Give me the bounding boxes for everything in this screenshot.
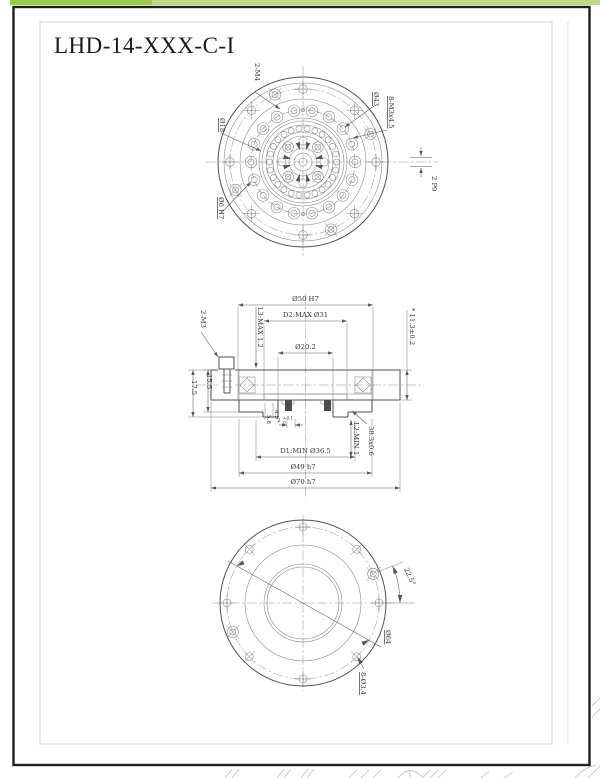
dim-label-d1min: D1:MIN Ø36.5 (280, 447, 331, 455)
dim-label-l2: L2:MIN 1 (352, 422, 360, 455)
dim-label-8-d34: 8-Ø3.4 (359, 672, 367, 695)
top-accent-bar-left (10, 0, 152, 5)
dim-label-l3: L3:MAX 1.2 (256, 307, 264, 348)
dim-label-ring: 38.3x0.6 (367, 426, 375, 456)
m3-bolt (218, 356, 235, 394)
dim-label-d50: Ø50 H7 (292, 295, 319, 303)
dim-label-keyway: 2 P9 (430, 176, 438, 191)
sheet-border (14, 7, 590, 765)
dim-label-d2max: D2:MAX Ø31 (283, 311, 328, 319)
dim-label-d6h7: Ø6 H7 (217, 197, 225, 219)
dimension-l2: L2:MIN 1 (351, 420, 360, 457)
top-accent-bar-right (152, 0, 600, 5)
drawing-sheet: LHD-14-XXX-C-I 2 P9 2-M4 (0, 0, 600, 778)
dim-label-d202: Ø20.2 (295, 343, 316, 351)
dim-label-58: 5.8 (265, 415, 271, 424)
drawing-page: LHD-14-XXX-C-I 2 P9 2-M4 (0, 0, 600, 778)
dim-label-d49: Ø49 h7 (290, 463, 315, 471)
dim-label-113: * 11.3±0.2 (408, 308, 416, 345)
dim-label-2-m4: 2-M4 (253, 63, 261, 81)
dim-label-155: 15.5 (205, 374, 213, 389)
dim-label-2-m3: 2-M3 (199, 310, 207, 328)
dim-label-175: 17.5 (190, 380, 198, 395)
dim-label-d64: Ø64 (384, 630, 392, 644)
dim-label-d18: Ø18 (218, 118, 226, 132)
dim-label-8-m3: 8-M3x4.5 (387, 96, 395, 129)
dim-label-d70: Ø70 h7 (290, 478, 315, 486)
dim-label-d43: Ø43 (372, 92, 380, 106)
drawing-title: LHD-14-XXX-C-I (54, 33, 235, 58)
